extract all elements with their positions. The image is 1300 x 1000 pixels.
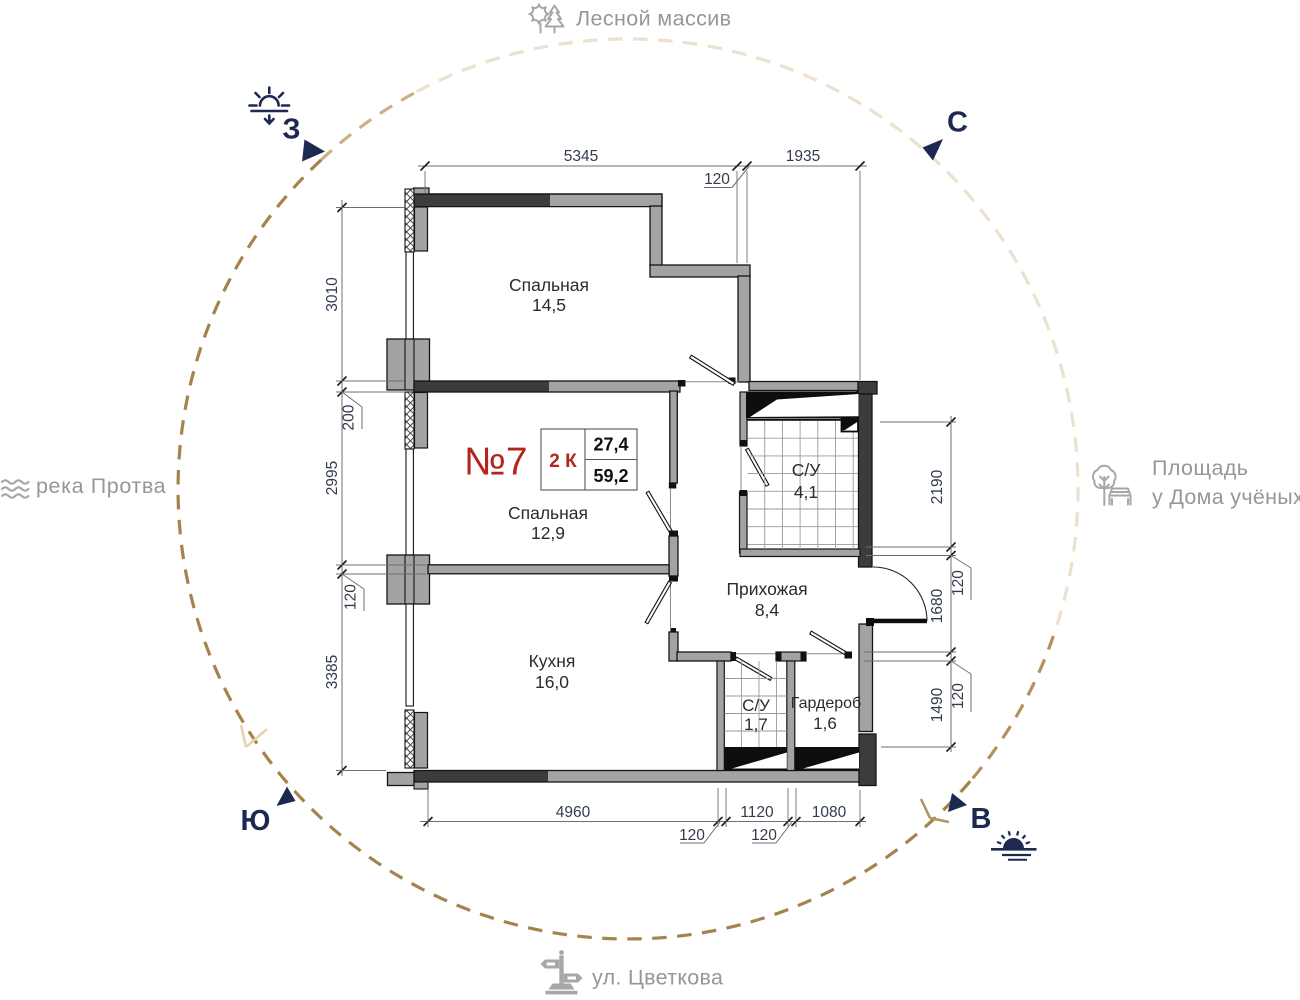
svg-text:2190: 2190 [929, 469, 946, 504]
svg-text:3010: 3010 [324, 277, 341, 312]
svg-text:Прихожая: Прихожая [726, 579, 807, 599]
svg-text:Ю: Ю [241, 805, 271, 837]
svg-text:120: 120 [704, 171, 730, 188]
svg-text:С/У: С/У [792, 460, 822, 480]
svg-text:14,5: 14,5 [532, 295, 566, 315]
svg-text:Лесной массив: Лесной массив [576, 7, 732, 31]
svg-text:120: 120 [679, 827, 705, 844]
svg-text:В: В [971, 803, 992, 835]
svg-text:2995: 2995 [324, 461, 341, 495]
svg-text:1120: 1120 [740, 804, 774, 821]
svg-text:Спальная: Спальная [508, 503, 588, 523]
svg-text:27,4: 27,4 [593, 435, 628, 455]
svg-text:Кухня: Кухня [529, 651, 576, 671]
svg-text:120: 120 [950, 683, 967, 709]
svg-text:12,9: 12,9 [531, 523, 565, 543]
svg-text:120: 120 [950, 570, 967, 596]
svg-text:5345: 5345 [564, 148, 598, 165]
svg-text:у Дома учёных: у Дома учёных [1152, 485, 1300, 509]
svg-text:1680: 1680 [929, 588, 946, 623]
svg-text:8,4: 8,4 [755, 600, 780, 620]
svg-text:Гардероб: Гардероб [791, 695, 861, 712]
svg-text:4960: 4960 [556, 804, 591, 821]
svg-text:120: 120 [343, 584, 360, 610]
svg-text:120: 120 [751, 827, 777, 844]
svg-text:59,2: 59,2 [593, 466, 628, 486]
svg-text:3385: 3385 [324, 655, 341, 689]
svg-text:4,1: 4,1 [794, 482, 818, 502]
svg-text:С: С [947, 107, 968, 139]
svg-text:Площадь: Площадь [1152, 456, 1248, 480]
svg-text:река Протва: река Протва [36, 474, 166, 498]
svg-text:2 К: 2 К [549, 451, 577, 472]
svg-text:1080: 1080 [812, 804, 847, 821]
svg-text:1935: 1935 [786, 148, 820, 165]
svg-text:1,7: 1,7 [744, 715, 768, 734]
svg-text:С/У: С/У [742, 696, 770, 715]
svg-text:Спальная: Спальная [509, 275, 589, 295]
svg-text:200: 200 [341, 404, 358, 430]
svg-text:З: З [282, 114, 300, 146]
svg-text:ул. Цветкова: ул. Цветкова [592, 966, 723, 990]
svg-text:16,0: 16,0 [535, 672, 569, 692]
svg-text:№7: №7 [464, 441, 528, 484]
svg-text:1490: 1490 [929, 687, 946, 722]
svg-text:1,6: 1,6 [813, 714, 837, 733]
